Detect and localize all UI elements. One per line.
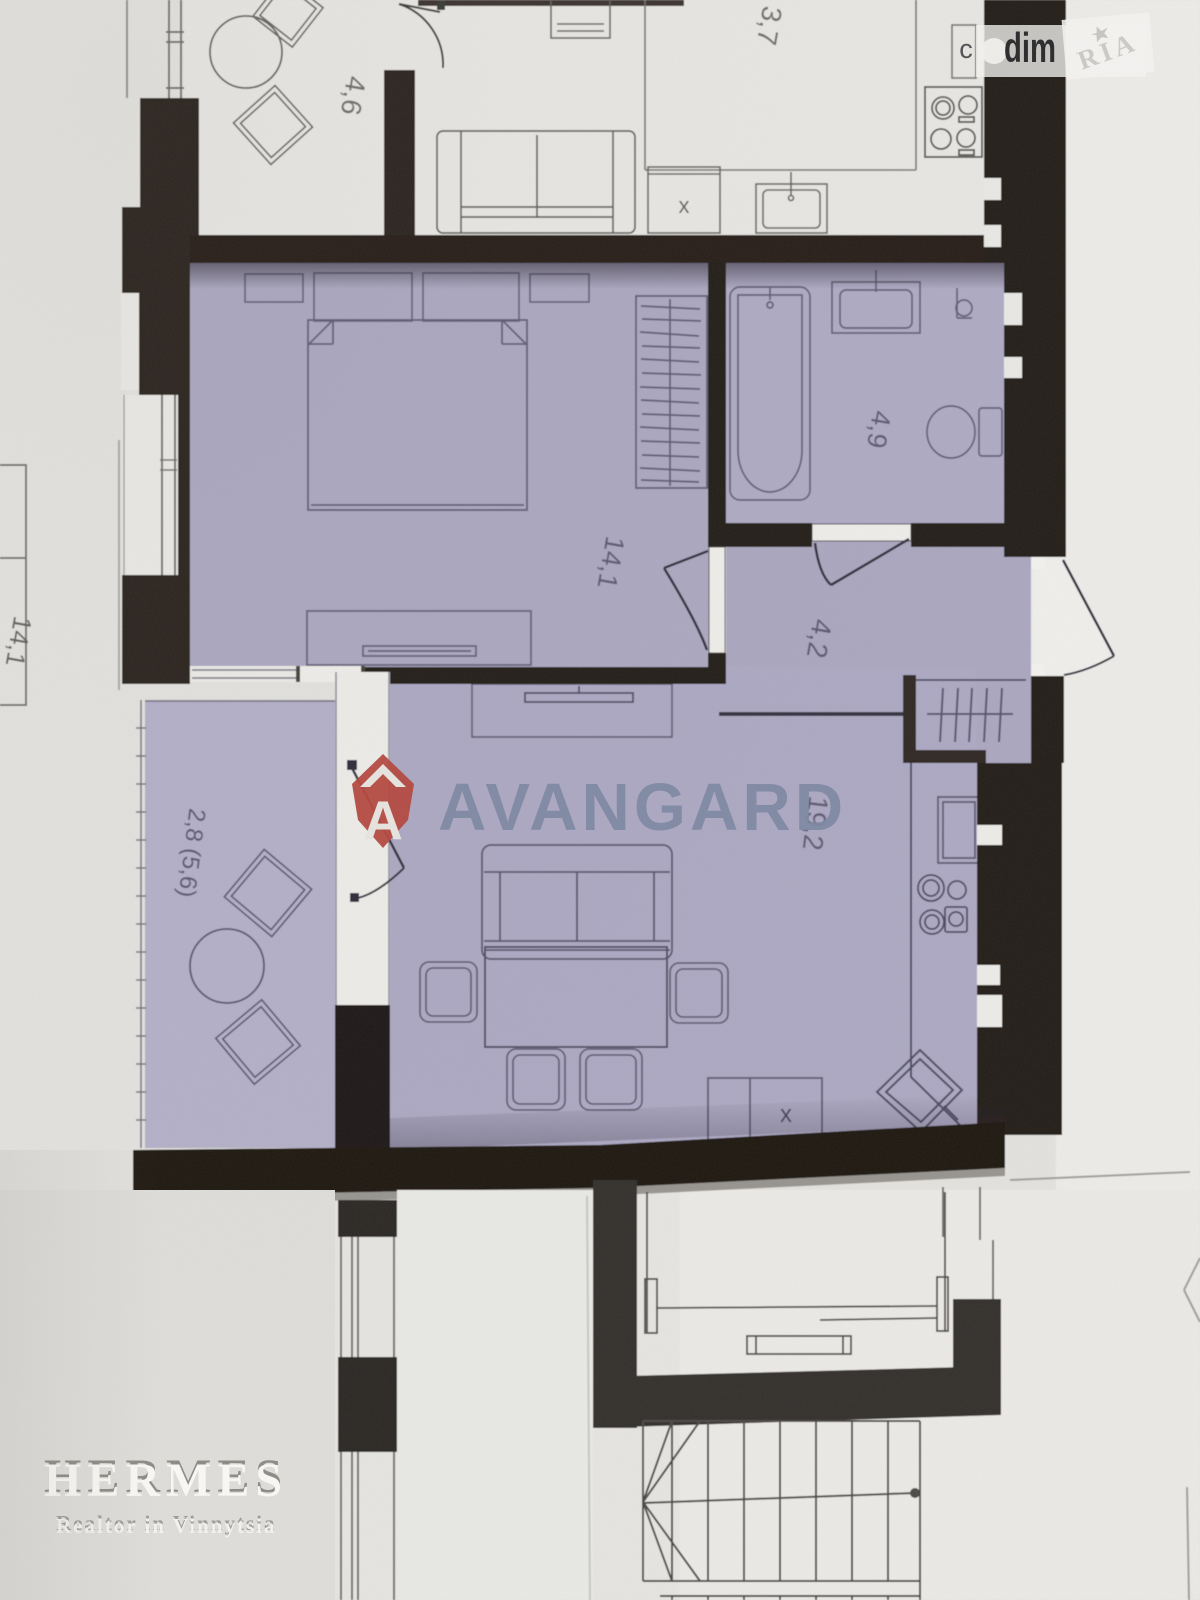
svg-text:HERMES: HERMES bbox=[44, 1454, 288, 1507]
svg-text:4,9: 4,9 bbox=[861, 408, 897, 450]
svg-text:A: A bbox=[363, 789, 403, 851]
svg-text:c: c bbox=[959, 34, 973, 64]
svg-text:dim: dim bbox=[1004, 24, 1056, 71]
svg-text:AVANGARD: AVANGARD bbox=[438, 770, 847, 845]
svg-text:x: x bbox=[679, 193, 690, 218]
svg-text:Realtor in Vinnytsia: Realtor in Vinnytsia bbox=[56, 1514, 276, 1538]
